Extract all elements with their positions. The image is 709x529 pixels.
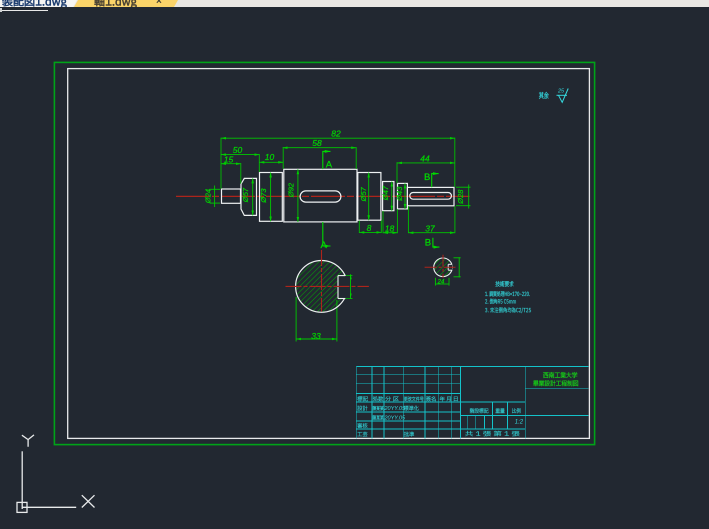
svg-text:15: 15: [224, 154, 234, 164]
svg-text:Ø47: Ø47: [381, 185, 390, 201]
svg-text:20YY.05: 20YY.05: [384, 416, 407, 422]
svg-text:A: A: [321, 240, 328, 251]
svg-text:82: 82: [331, 129, 341, 139]
svg-text:Ø73: Ø73: [259, 188, 268, 204]
svg-text:B: B: [424, 172, 430, 183]
svg-text:58: 58: [312, 138, 322, 148]
svg-text:18: 18: [385, 223, 395, 233]
svg-text:24: 24: [437, 280, 445, 286]
svg-text:Ø43: Ø43: [395, 186, 404, 202]
svg-text:Ø57: Ø57: [359, 186, 368, 202]
svg-text:Ø57: Ø57: [241, 187, 250, 203]
svg-text:1:2: 1:2: [515, 420, 524, 426]
svg-text:A: A: [326, 159, 333, 170]
svg-text:20YY.05: 20YY.05: [384, 406, 407, 412]
svg-text:25: 25: [557, 89, 565, 95]
svg-text:50: 50: [233, 145, 243, 155]
svg-text:37: 37: [425, 223, 435, 233]
svg-text:44: 44: [420, 153, 430, 163]
svg-text:Ø92: Ø92: [286, 182, 295, 198]
svg-text:33: 33: [311, 331, 321, 341]
svg-text:B: B: [425, 238, 431, 249]
svg-text:Ø24: Ø24: [203, 189, 212, 204]
svg-text:Ø28: Ø28: [456, 189, 465, 205]
svg-text:10: 10: [265, 152, 275, 162]
svg-text:8: 8: [367, 223, 372, 233]
